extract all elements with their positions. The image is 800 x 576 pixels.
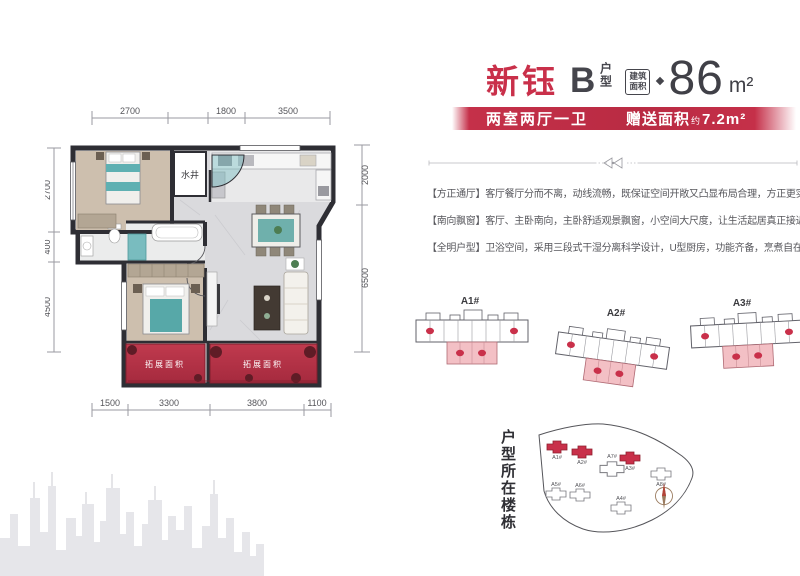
- skyline-decoration: [0, 470, 270, 576]
- svg-text:A8#: A8#: [656, 482, 667, 488]
- svg-text:3800: 3800: [247, 398, 267, 408]
- feature-list: 【方正通厅】客厅餐厅分而不离，动线流畅，既保证空间开敞又凸显布局合理，方正更实用…: [427, 181, 800, 262]
- unit-location-diagrams: A1# A2# A3#: [408, 290, 800, 398]
- building-a1-diagram: [416, 310, 528, 364]
- svg-text:1500: 1500: [100, 398, 120, 408]
- floorplan: 水井: [45, 98, 385, 420]
- feature-line: 【方正通厅】客厅餐厅分而不离，动线流畅，既保证空间开敞又凸显布局合理，方正更实用…: [427, 181, 800, 208]
- svg-text:2000: 2000: [360, 165, 370, 185]
- banner-room-count: 两室两厅一卫: [486, 108, 588, 129]
- feature-line: 【全明户型】卫浴空间，采用三段式干湿分离科学设计，U型厨房，功能齐备，烹煮自在随…: [427, 235, 800, 262]
- building-a3-label: A3#: [733, 298, 752, 309]
- divider-ornament: [427, 156, 799, 170]
- svg-text:A4#: A4#: [616, 496, 627, 502]
- bonus-area-label: 赠送面积: [626, 108, 690, 129]
- building-a2-diagram: [552, 322, 670, 391]
- building-a2-label: A2#: [607, 308, 626, 319]
- banner-bonus-area: 赠送面积 约 7.2m²: [626, 108, 746, 129]
- area-badge: 建筑 面积: [625, 69, 650, 95]
- project-name: 新钰: [486, 65, 558, 98]
- layout-banner: 两室两厅一卫 赠送面积 约 7.2m²: [452, 107, 796, 130]
- svg-text:6500: 6500: [360, 268, 370, 288]
- balcony-left-label: 拓展面积: [145, 359, 185, 369]
- brochure-page: 新钰 B 户型 建筑 面积 86 m² 两室两厅一卫 赠送面积 约 7.2m² …: [0, 0, 800, 576]
- svg-text:A7#: A7#: [607, 454, 618, 460]
- svg-text:400: 400: [45, 239, 52, 254]
- building-a3-diagram: [690, 310, 800, 370]
- unit-letter: B: [570, 63, 595, 98]
- svg-text:A3#: A3#: [625, 466, 636, 472]
- svg-text:2700: 2700: [120, 106, 140, 116]
- svg-text:3500: 3500: [278, 106, 298, 116]
- site-boundary: [539, 424, 693, 532]
- balcony-right-label: 拓展面积: [243, 359, 283, 369]
- svg-text:A6#: A6#: [575, 483, 586, 489]
- dining-set: [252, 205, 300, 256]
- feature-line: 【南向飘窗】客厅、主卧南向，主卧舒适观景飘窗，小空间大尺度，让生活起居真正接近阳…: [427, 208, 800, 235]
- svg-text:A2#: A2#: [577, 460, 588, 466]
- svg-text:3300: 3300: [159, 398, 179, 408]
- svg-text:A1#: A1#: [552, 455, 563, 461]
- area-badge-line2: 面积: [629, 82, 646, 92]
- area-value: 86: [668, 59, 723, 98]
- kitchen-sink: [300, 155, 316, 166]
- building-a1-label: A1#: [461, 296, 480, 307]
- bonus-area-approx: 约: [691, 114, 701, 127]
- svg-text:1100: 1100: [307, 398, 326, 408]
- balconies: 拓展面积 拓展面积: [126, 344, 317, 383]
- svg-text:1800: 1800: [216, 106, 236, 116]
- title-block: 新钰 B 户型 建筑 面积 86 m²: [486, 56, 753, 98]
- unit-suffix: 户型: [598, 62, 611, 98]
- diamond-icon: [656, 77, 664, 85]
- svg-text:A5#: A5#: [551, 482, 562, 488]
- bonus-area-value: 7.2m²: [702, 111, 746, 128]
- svg-text:4500: 4500: [45, 297, 52, 317]
- area-unit: m²: [729, 75, 754, 96]
- svg-text:2700: 2700: [45, 180, 52, 200]
- kitchen-appliance: [318, 186, 329, 196]
- siteplan: A1# A2# A7# A3# A8# A5# A6# A4#: [492, 418, 800, 568]
- water-shaft-label: 水井: [181, 169, 199, 180]
